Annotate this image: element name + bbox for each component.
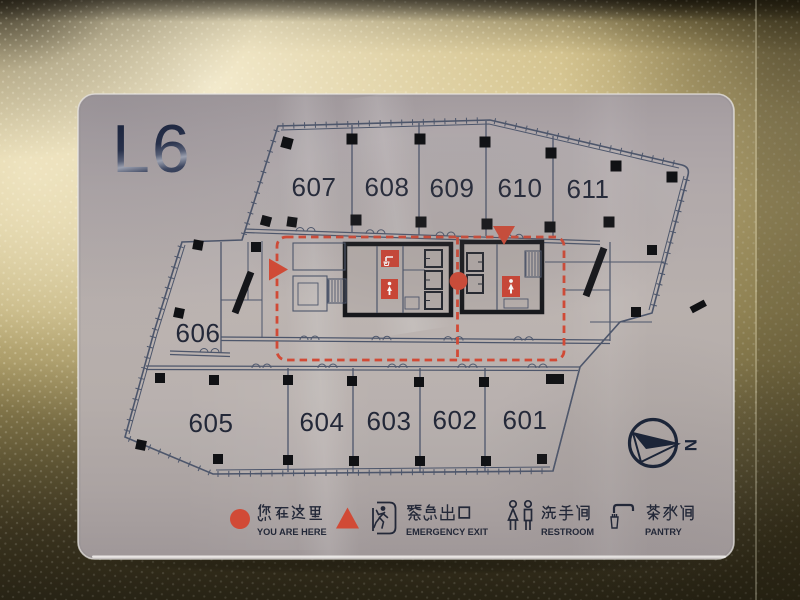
svg-text:L6: L6 xyxy=(112,111,192,187)
svg-text:604: 604 xyxy=(300,407,345,437)
svg-text:606: 606 xyxy=(176,318,221,348)
svg-text:YOU ARE HERE: YOU ARE HERE xyxy=(257,527,327,537)
svg-text:N: N xyxy=(681,439,700,451)
svg-text:603: 603 xyxy=(367,406,412,436)
svg-text:602: 602 xyxy=(433,405,478,435)
svg-text:EMERGENCY EXIT: EMERGENCY EXIT xyxy=(406,527,488,537)
svg-text:RESTROOM: RESTROOM xyxy=(541,527,594,537)
svg-text:605: 605 xyxy=(189,408,234,438)
svg-text:PANTRY: PANTRY xyxy=(645,527,682,537)
